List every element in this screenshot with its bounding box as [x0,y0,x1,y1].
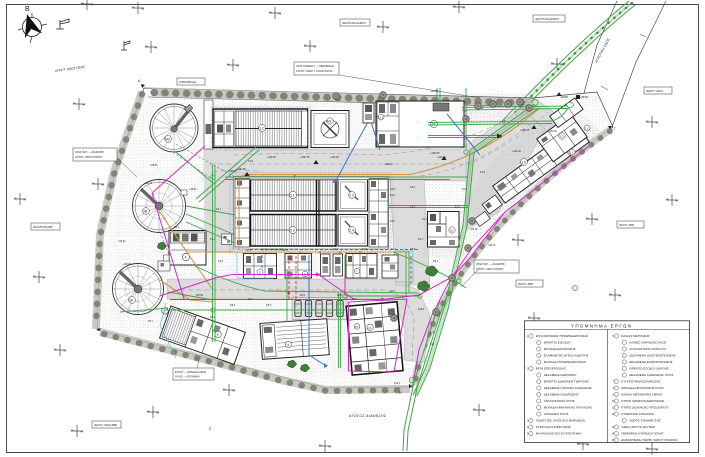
svg-text:1.5: 1.5 [584,126,588,130]
svg-text:Κ4.1: Κ4.1 [218,259,224,263]
svg-text:Κ1.1: Κ1.1 [174,225,180,229]
svg-text:ΦΡ.45: ΦΡ.45 [196,293,204,297]
svg-text:4: 4 [185,256,187,260]
svg-text:1.2: 1.2 [259,127,264,131]
svg-text:ΜΟΝΑΔΑ ΑΦΥΔΑΤΩΣΗΣ ΙΛΥΟΣ: ΜΟΝΑΔΑ ΑΦΥΔΑΤΩΣΗΣ ΙΛΥΟΣ [621,386,664,390]
svg-text:Κ8.2: Κ8.2 [210,316,216,319]
svg-text:Κ6.4: Κ6.4 [248,298,254,301]
svg-text:Κ4.2: Κ4.2 [362,248,368,251]
svg-text:+98.45: +98.45 [123,262,132,266]
svg-text:ΟΡΙΑ ΓΗΠ. — ΔΙΑΜΟΡΦ.: ΟΡΙΑ ΓΗΠ. — ΔΙΑΜΟΡΦ. [75,150,105,154]
svg-text:Κ6.1: Κ6.1 [283,249,289,252]
svg-text:Κ6.5: Κ6.5 [352,298,358,301]
svg-text:1.3: 1.3 [559,134,564,138]
svg-text:ΚΑΝΑΛΙ ΜΕΤΡΗΣΗΣ: ΚΑΝΑΛΙ ΜΕΤΡΗΣΗΣ [621,334,649,338]
svg-text:ΔΕΞΑΜΕΝΗ ΟΜΟΓΕΝΟΠΟΙΗΣΗΣ: ΔΕΞΑΜΕΝΗ ΟΜΟΓΕΝΟΠΟΙΗΣΗΣ [629,354,675,358]
svg-text:2.4: 2.4 [349,229,354,233]
svg-text:ΣΤ: ΣΤ [430,331,434,335]
svg-text:Κ2.4: Κ2.4 [422,218,428,221]
svg-text:+100.35: +100.35 [236,167,246,171]
svg-text:ΚΑΝΑΛΙ ΜΕΤΑΦΟΡΑΣ ΝΕΡΟΥ: ΚΑΝΑΛΙ ΜΕΤΑΦΟΡΑΣ ΝΕΡΟΥ [621,393,662,397]
svg-text:ΙΔΙΟΚΤ. ΔΒΒ: ΙΔΙΟΚΤ. ΔΒΒ [619,223,634,227]
svg-text:ΟΡΙΟ ΚΑΤΑΛΗΨΗΣ: ΟΡΙΟ ΚΑΤΑΛΗΨΗΣ [261,248,284,252]
svg-text:ΧΩΡΟΣ ΣΤΑΘΜΕΥΣΗΣ: ΧΩΡΟΣ ΣΤΑΘΜΕΥΣΗΣ [629,419,661,423]
svg-text:2.3: 2.3 [290,229,295,233]
svg-text:Κ1.3: Κ1.3 [462,188,468,191]
svg-text:ΟΡΙΑ ΓΗΠ. — ΔΙΑΜΟΡΦ.: ΟΡΙΑ ΓΗΠ. — ΔΙΑΜΟΡΦ. [476,262,506,266]
svg-text:ΔΙΑΜΟΡΦΩΣΗ ΠΕΡΙΒ. ΧΩΡΟΥ ΠΡΑΣΙΝ: ΔΙΑΜΟΡΦΩΣΗ ΠΕΡΙΒ. ΧΩΡΟΥ ΠΡΑΣΙΝΟ [621,438,678,442]
svg-text:1.1: 1.1 [569,150,573,154]
svg-text:Κ2.3: Κ2.3 [410,206,416,209]
svg-text:ΙΔΙΟΚΤΗΣΙΑ ΑΒΓ: ΙΔΙΟΚΤΗΣΙΑ ΑΒΓ [33,225,53,229]
svg-text:10: 10 [450,228,454,232]
svg-text:+99.20: +99.20 [470,228,478,231]
svg-text:Κ8.1: Κ8.1 [148,320,154,323]
svg-text:ΙΔΙΟΚΤΗΣΙΑ ΔΗΜΟΥ: ΙΔΙΟΚΤΗΣΙΑ ΔΗΜΟΥ [342,21,367,25]
svg-text:Γ: Γ [614,127,616,131]
svg-text:ΚΛΙΝΕΣ ΞΗΡΑΝΣΗΣ ΙΛΥΟΣ: ΚΛΙΝΕΣ ΞΗΡΑΝΣΗΣ ΙΛΥΟΣ [629,341,666,345]
svg-text:ΣΥΝΕΡΓΕΙΟ ΑΠΟΘΗΚΗ: ΣΥΝΕΡΓΕΙΟ ΑΠΟΘΗΚΗ [621,412,654,416]
svg-text:ΙΛΥΟΣ — ΑΠΟΘΗΚΗ: ΙΛΥΟΣ — ΑΠΟΘΗΚΗ [175,375,200,379]
svg-text:ΔΕΞΑΜΕΝΗ ΚΑΘΙΖΗΣΗΣ ΙΛΥΟΣ: ΔΕΞΑΜΕΝΗ ΚΑΘΙΖΗΣΗΣ ΙΛΥΟΣ [629,373,673,377]
svg-text:+98.75: +98.75 [144,181,153,185]
svg-text:+88.80: +88.80 [580,95,589,99]
svg-text:ΜΟΝΑΔΑ ΠΡΟΕΠΕΞΕΡΓΑΣΙΑΣ: ΜΟΝΑΔΑ ΠΡΟΕΠΕΞΕΡΓΑΣΙΑΣ [544,360,586,364]
svg-text:Κ1.8: Κ1.8 [480,171,486,174]
svg-text:+98.80: +98.80 [189,188,197,191]
svg-text:ΧΩΝΕΥΤΕΣ ΙΛΥΟΣ ΔΥΟ ΒΑΘΜΙΔΩΝ: ΧΩΝΕΥΤΕΣ ΙΛΥΟΣ ΔΥΟ ΒΑΘΜΙΔΩΝ [536,419,585,423]
svg-text:Κ2.8: Κ2.8 [248,160,254,163]
svg-text:ΔΕΞΑΜΕΝΗ ΧΛΩΡΙΩΣΗΣ: ΔΕΞΑΜΕΝΗ ΧΛΩΡΙΩΣΗΣ [544,393,579,397]
svg-text:2.2: 2.2 [349,194,354,198]
svg-text:Κ11: Κ11 [430,343,435,346]
svg-text:2.1: 2.1 [290,194,295,198]
svg-text:+98.95: +98.95 [150,164,158,167]
svg-text:ΜΗΧΑΝΟΛΟΓΙΚΟ ΣΥΓΚΡΟΤΗΜΑ: ΜΗΧΑΝΟΛΟΓΙΚΟ ΣΥΓΚΡΟΤΗΜΑ [536,432,581,436]
svg-text:ΕΡΓΑ ΕΠΕΞΕΡΓΑΣΙΑΣ: ΕΡΓΑ ΕΠΕΞΕΡΓΑΣΙΑΣ [536,367,566,371]
svg-text:ΕΞΑΜΜΩΤΗΣ ΛΙΠΟΣΥΛΛΕΚΤΗΣ: ΕΞΑΜΜΩΤΗΣ ΛΙΠΟΣΥΛΛΕΚΤΗΣ [544,354,589,358]
svg-text:Κ6.3: Κ6.3 [266,303,272,307]
svg-text:ΑΠΟΘΗΚΗ ΙΛΥΟΣ: ΑΠΟΘΗΚΗ ΙΛΥΟΣ [544,412,569,416]
svg-text:3A: 3A [129,299,134,303]
svg-text:Κ6.6: Κ6.6 [300,294,306,297]
svg-text:12.1: 12.1 [378,115,384,119]
svg-text:Κ10.2: Κ10.2 [418,308,425,311]
svg-text:+98.60: +98.60 [118,240,126,243]
svg-text:ΦΡΕΑΤΙΟ ΕΞΟΔΟΥ ΕΚΡΟΗΣ: ΦΡΕΑΤΙΟ ΕΞΟΔΟΥ ΕΚΡΟΗΣ [629,367,669,371]
svg-text:+100.15: +100.15 [228,170,237,173]
svg-text:Z: Z [209,427,211,431]
svg-text:3B: 3B [143,210,148,214]
svg-text:Κ2.6: Κ2.6 [390,220,396,223]
svg-text:ΑΓΡΟΤ. ΟΔΟΣ ΚΟΙΝΟΤ.: ΑΓΡΟΤ. ΟΔΟΣ ΚΟΙΝΟΤ. [476,267,504,271]
svg-text:Κ3.1: Κ3.1 [216,208,222,211]
svg-text:+99.10: +99.10 [488,244,496,247]
svg-text:ΚΤΙΡΙΟ ΔΙΟΙΚΗΣΗΣ ΠΡΟΣΩΠΙΚΟΥ: ΚΤΙΡΙΟ ΔΙΟΙΚΗΣΗΣ ΠΡΟΣΩΠΙΚΟΥ [621,406,668,410]
svg-text:+100.50: +100.50 [267,156,276,159]
svg-text:ΟΔΙΚΟ ΔΙΚΤΥΟ ΕΞΥΠΗΡ.: ΟΔΙΚΟ ΔΙΚΤΥΟ ΕΞΥΠΗΡ. [621,425,656,429]
svg-text:+100.95: +100.95 [430,151,440,155]
svg-text:M3: M3 [165,138,170,142]
svg-text:Κ1.1: Κ1.1 [210,238,216,241]
svg-text:Κ2.2: Κ2.2 [410,186,416,189]
svg-text:ΑΓΡΟΤ. ΟΔΟΣ ΚΟΙΝΟΤ.: ΑΓΡΟΤ. ΟΔΟΣ ΚΟΙΝΟΤ. [75,155,103,159]
svg-text:ΑΓΡΟΤ. ΟΔΟΣ Τ. ΚΟΙΝΟΤΗΤΑΣ: ΑΓΡΟΤ. ΟΔΟΣ Τ. ΚΟΙΝΟΤΗΤΑΣ [296,69,333,73]
svg-text:+101.80: +101.80 [548,130,557,133]
svg-text:ΜΟΝΑΔΑ ΕΣΧΑΡΩΣΗΣ: ΜΟΝΑΔΑ ΕΣΧΑΡΩΣΗΣ [544,347,576,351]
svg-text:+99.80: +99.80 [430,89,439,93]
svg-text:Κ1.2: Κ1.2 [455,206,461,209]
svg-text:Κ6.3: Κ6.3 [390,290,396,293]
svg-text:ΠΕΡΙΦΡΑΞΗ ΓΗΠΕΔΟΥ ΕΓΚΑΤ.: ΠΕΡΙΦΡΑΞΗ ΓΗΠΕΔΟΥ ΕΓΚΑΤ. [621,432,664,436]
svg-text:ΕΓΚΑΤΑΣΤΑΣΕΙΣ ΠΡΟΕΠΕΞΕΡΓΑΣΙΑΣ: ΕΓΚΑΤΑΣΤΑΣΕΙΣ ΠΡΟΕΠΕΞΕΡΓΑΣΙΑΣ [536,334,589,338]
svg-text:ΥΠΟΜΝΗΜΑ ΕΡΓΩΝ: ΥΠΟΜΝΗΜΑ ΕΡΓΩΝ [571,323,632,328]
svg-text:ΚΤΙΡΙΟ ΕΞΥΠΗΡΕΤΗΣΗΣ: ΚΤΙΡΙΟ ΕΞΥΠΗΡΕΤΗΣΗΣ [536,425,571,429]
svg-text:ΦΡΕΑΤΙΟ ΕΙΣΟΔΟΥ: ΦΡΕΑΤΙΟ ΕΙΣΟΔΟΥ [544,341,571,345]
svg-text:Κ7.5: Κ7.5 [410,247,416,251]
svg-text:ΑΝΤΛΙΟΣΤΑΣΙΟ ΙΛΥΟΣ: ΑΝΤΛΙΟΣΤΑΣΙΟ ΙΛΥΟΣ [544,399,575,403]
svg-text:Α ΠΕΡΙΦΡΑΞΗ: Α ΠΕΡΙΦΡΑΞΗ [179,80,196,84]
svg-text:ΜΟΝΑΔΑ ΜΗΧΑΝΙΚΗΣ ΠΑΧΥΝΣΗΣ: ΜΟΝΑΔΑ ΜΗΧΑΝΙΚΗΣ ΠΑΧΥΝΣΗΣ [544,406,593,410]
svg-text:+102.00: +102.00 [520,128,530,132]
svg-text:Κ6.1: Κ6.1 [433,259,439,263]
svg-text:+100.42: +100.42 [384,163,393,166]
svg-text:Κ11.2: Κ11.2 [394,382,401,385]
svg-text:Κ6.3: Κ6.3 [337,294,343,297]
svg-text:ΕΓΚΑΤ. — ΜΟΝΑΔΑ ΑΦΥΔ.: ΕΓΚΑΤ. — ΜΟΝΑΔΑ ΑΦΥΔ. [175,370,207,374]
svg-text:Κ4.1: Κ4.1 [333,248,339,251]
svg-text:Κ6.1: Κ6.1 [418,238,424,241]
svg-text:ΔΕΞΑΜΕΝΗ ΑΕΡΙΣΜΟΥ: ΔΕΞΑΜΕΝΗ ΑΕΡΙΣΜΟΥ [544,373,577,377]
svg-text:M1: M1 [327,120,332,124]
svg-text:ΣΥΓΚΡΟΤΗΜΑ ΕΣΧΑΡΩΣΗΣ: ΣΥΓΚΡΟΤΗΜΑ ΕΣΧΑΡΩΣΗΣ [621,380,660,384]
svg-text:ΦΡΕΑΤΙΟ ΔΙΑΝΟΜΗΣ ΠΑΡΟΧΗΣ: ΦΡΕΑΤΙΟ ΔΙΑΝΟΜΗΣ ΠΑΡΟΧΗΣ [544,380,589,384]
svg-text:Κ6.4: Κ6.4 [230,303,236,307]
svg-text:+100.60: +100.60 [330,156,339,159]
svg-text:ΙΔΙΟΚΤ. ΔΒΒ: ΙΔΙΟΚΤ. ΔΒΒ [518,282,533,286]
svg-text:ΙΔΙΟΚΤ. ΟΔΟΣ: ΙΔΙΟΚΤ. ΟΔΟΣ [646,89,663,93]
svg-text:Κ2.2: Κ2.2 [390,193,396,197]
svg-text:+100.75: +100.75 [300,155,310,159]
svg-text:Κ2.3: Κ2.3 [390,187,396,191]
svg-text:1.6: 1.6 [521,161,526,165]
svg-text:ΟΡΙΑ ΓΗΠΕΔΟΥ — ΠΕΡΙΦΡΑΞΗ: ΟΡΙΑ ΓΗΠΕΔΟΥ — ΠΕΡΙΦΡΑΞΗ [296,64,334,68]
svg-text:ΚΤΙΡΙΟ ΧΗΜΙΚΩΝ ΔΙΕΡΓΑΣΙΩΝ: ΚΤΙΡΙΟ ΧΗΜΙΚΩΝ ΔΙΕΡΓΑΣΙΩΝ [621,399,664,403]
svg-text:ΑΝΤΛΙΟΣΤΑΣΙΟ ΑΝΑΚΥΚΛ.: ΑΝΤΛΙΟΣΤΑΣΙΟ ΑΝΑΚΥΚΛ. [629,347,666,351]
svg-text:ΙΔΙΟΚΤΗΣΙΑ ΔΗΜΟΥ: ΙΔΙΟΚΤΗΣΙΑ ΔΗΜΟΥ [535,17,560,21]
svg-text:ΙΔΙΟΚΤ. ΟΔΟΣ ΔΒΒ: ΙΔΙΟΚΤ. ΟΔΟΣ ΔΒΒ [94,423,117,427]
svg-text:B: B [25,6,30,13]
svg-text:+101.30: +101.30 [512,150,521,153]
svg-text:Κ6.2: Κ6.2 [246,249,252,252]
svg-text:ΑΓΩΓΟΣ ΔΙΑΘΕΣΗΣ: ΑΓΩΓΟΣ ΔΙΑΘΕΣΗΣ [348,414,387,418]
svg-text:Κ7.1: Κ7.1 [391,248,397,251]
svg-text:ΔΕΞΑΜΕΝΗ ΤΕΛΙΚΗΣ ΚΑΘΙΖΗΣΗΣ: ΔΕΞΑΜΕΝΗ ΤΕΛΙΚΗΣ ΚΑΘΙΖΗΣΗΣ [544,386,592,390]
svg-text:ΔΕΞΑΜΕΝΗ ΕΞΙΣΟΡΡΟΠΗΣΗΣ: ΔΕΞΑΜΕΝΗ ΕΞΙΣΟΡΡΟΠΗΣΗΣ [629,360,672,364]
